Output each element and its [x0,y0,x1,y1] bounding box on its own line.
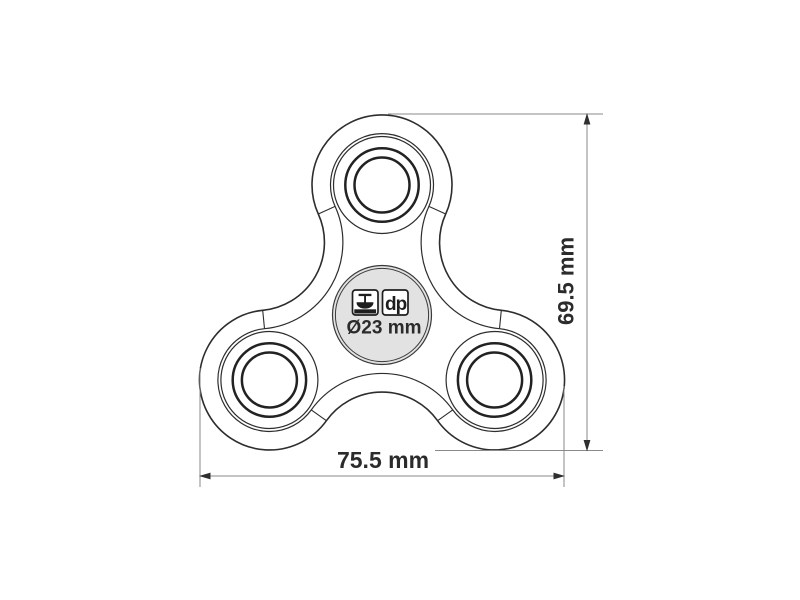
arrow-left-icon [199,473,211,480]
digital-print-icon: dp [383,290,409,315]
print-area-circle [333,266,432,365]
arrow-up-icon [584,113,591,125]
arrow-down-icon [584,440,591,452]
print-area-dimension: Ø23 mm [347,318,422,339]
print-area-hub [333,266,432,365]
technical-drawing-canvas: dp Ø23 mm 69.5 mm 75.5 mm [0,0,800,600]
digital-print-icon-label: dp [385,294,407,315]
fidget-spinner-drawing: dp Ø23 mm 69.5 mm 75.5 mm [0,0,800,600]
arrow-right-icon [554,473,566,480]
height-dimension-label: 69.5 mm [554,237,579,325]
pad-print-icon [353,290,379,315]
width-dimension-label: 75.5 mm [337,447,429,473]
